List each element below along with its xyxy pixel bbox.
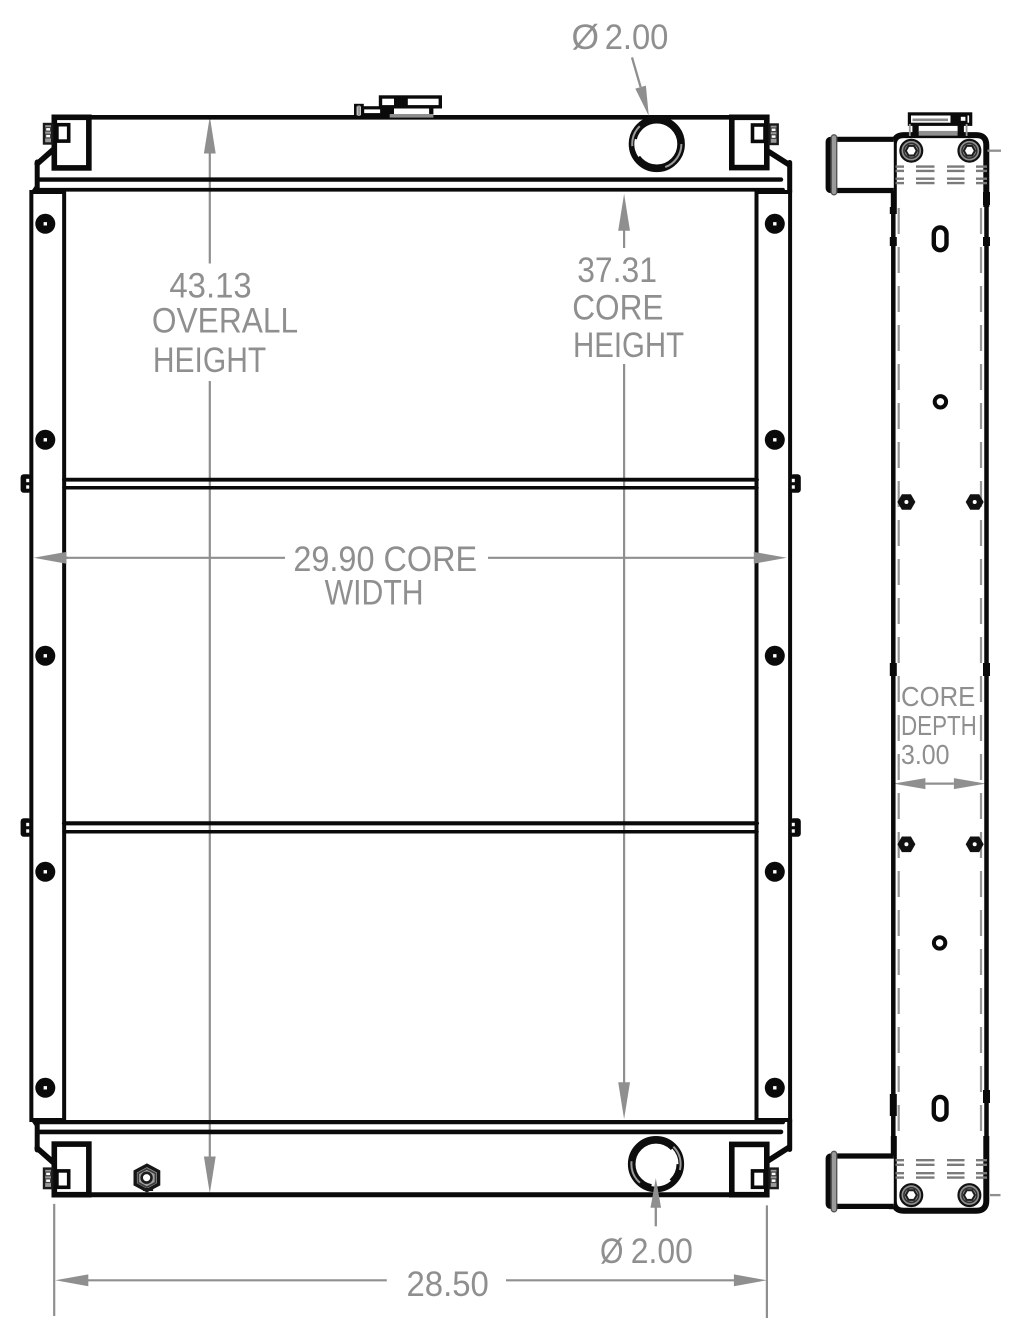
svg-text:CORE: CORE: [901, 681, 975, 712]
svg-text:3.00: 3.00: [901, 739, 950, 770]
svg-text:HEIGHT: HEIGHT: [573, 325, 684, 365]
svg-text:DEPTH: DEPTH: [901, 710, 977, 741]
svg-text:28.50: 28.50: [407, 1264, 489, 1304]
svg-text:2.00: 2.00: [605, 17, 669, 57]
svg-text:2.00: 2.00: [631, 1231, 693, 1271]
svg-text:37.31: 37.31: [577, 250, 657, 290]
svg-text:HEIGHT: HEIGHT: [153, 340, 266, 380]
svg-text:Ø: Ø: [572, 17, 600, 57]
svg-text:CORE: CORE: [572, 287, 663, 327]
svg-text:WIDTH: WIDTH: [325, 573, 424, 613]
svg-text:Ø: Ø: [600, 1231, 624, 1271]
svg-text:OVERALL: OVERALL: [152, 300, 298, 340]
